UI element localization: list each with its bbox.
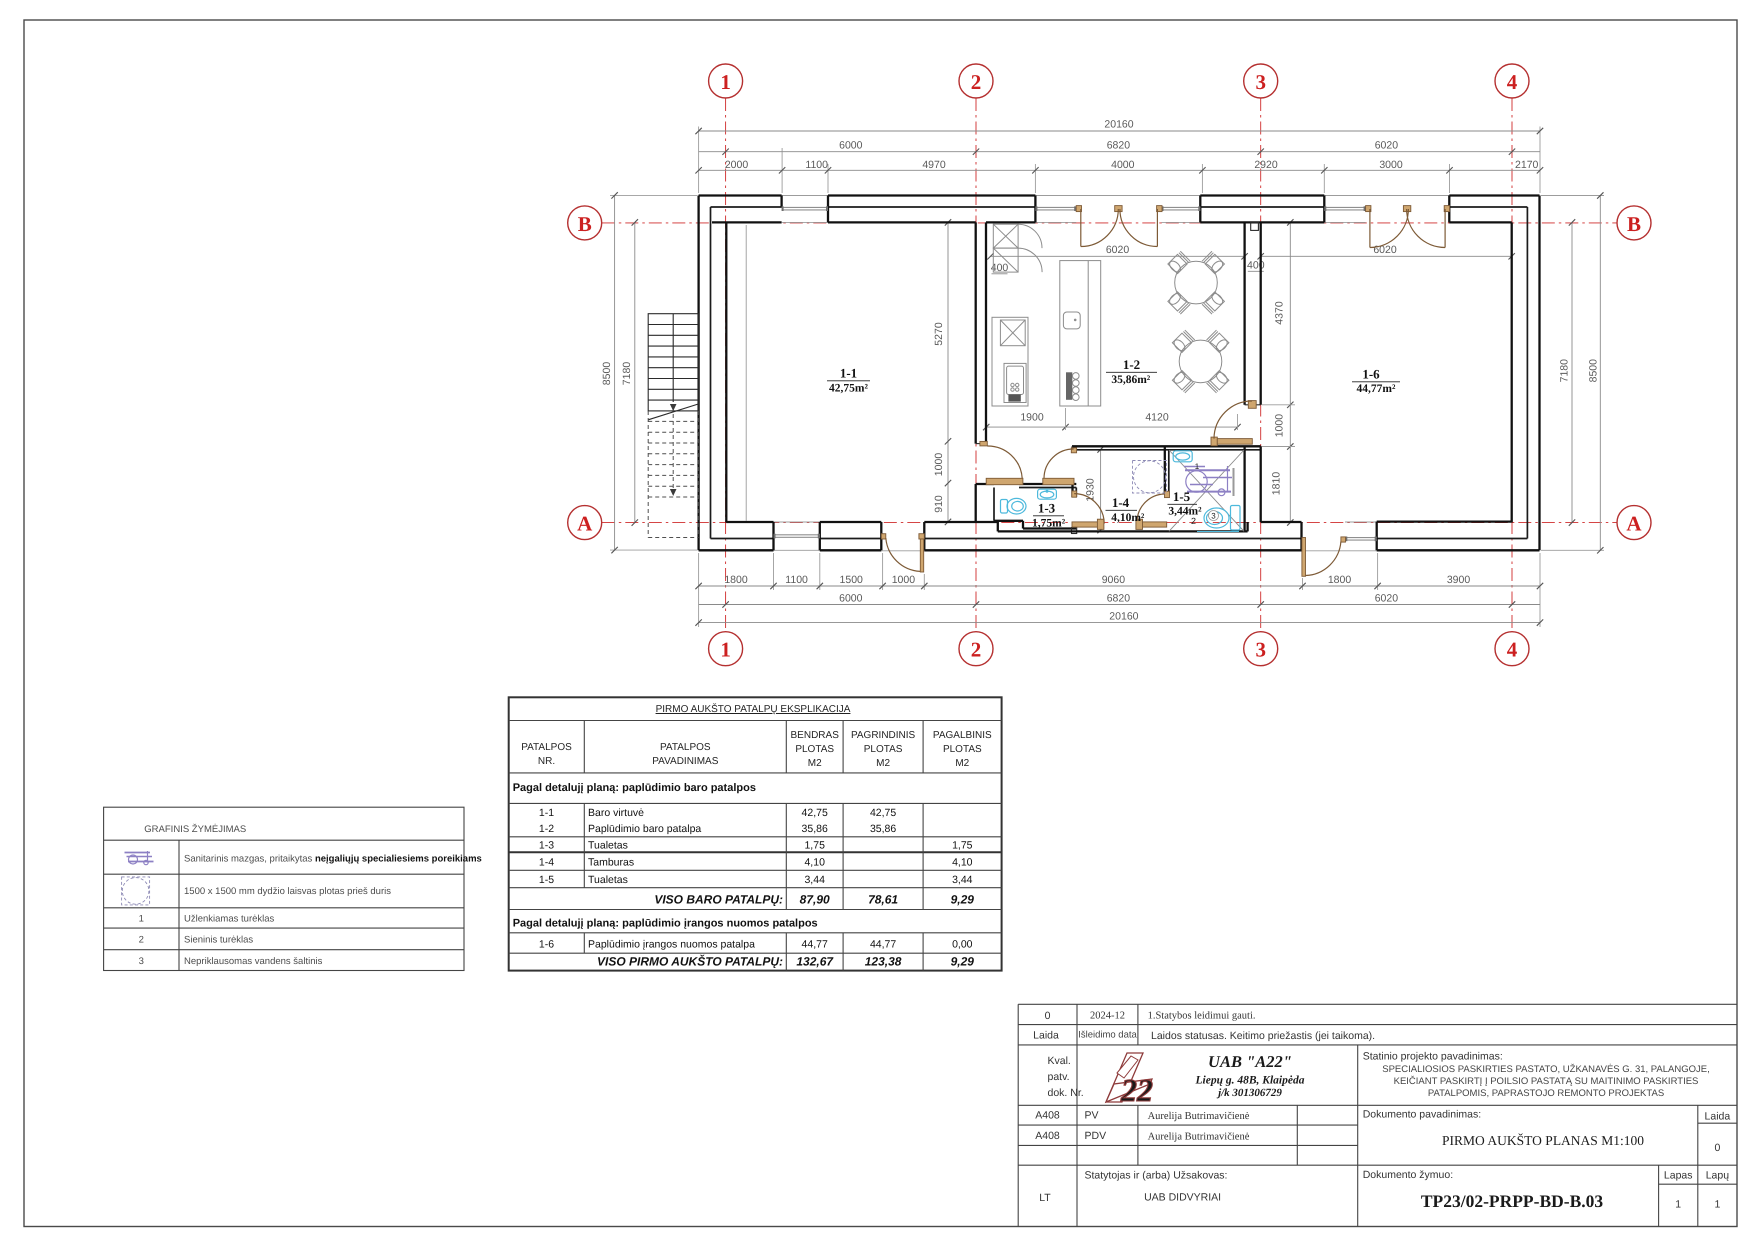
svg-text:1-1: 1-1 (539, 807, 554, 819)
svg-text:1800: 1800 (1328, 574, 1352, 586)
svg-text:3: 3 (1211, 512, 1216, 521)
svg-text:5270: 5270 (933, 322, 945, 346)
svg-text:1: 1 (1714, 1199, 1720, 1211)
svg-text:1100: 1100 (785, 574, 808, 586)
svg-text:6820: 6820 (1107, 140, 1131, 152)
svg-text:Laida: Laida (1033, 1030, 1059, 1042)
svg-text:PAVADINIMAS: PAVADINIMAS (652, 756, 718, 767)
svg-text:7180: 7180 (1558, 359, 1570, 383)
svg-text:2: 2 (139, 935, 144, 946)
svg-text:PLOTAS: PLOTAS (864, 744, 903, 755)
svg-text:4,10: 4,10 (804, 857, 825, 869)
svg-text:6820: 6820 (1107, 593, 1131, 605)
svg-text:Liepų g. 48B, Klaipėda: Liepų g. 48B, Klaipėda (1195, 1075, 1305, 1087)
svg-text:Laidos statusas. Keitimo priež: Laidos statusas. Keitimo priežastis (jei… (1151, 1030, 1375, 1042)
svg-text:42,75m²: 42,75m² (829, 383, 868, 395)
svg-text:Aurelija Butrimavičienė: Aurelija Butrimavičienė (1148, 1132, 1250, 1143)
svg-text:4: 4 (1507, 70, 1518, 94)
svg-text:35,86: 35,86 (802, 823, 828, 835)
svg-text:7180: 7180 (621, 362, 633, 386)
svg-text:Pagal detalujį planą: paplūdim: Pagal detalujį planą: paplūdimio baro pa… (513, 782, 756, 794)
svg-text:6000: 6000 (839, 593, 863, 605)
svg-text:2: 2 (1191, 516, 1196, 526)
svg-text:A: A (1626, 512, 1642, 536)
svg-text:2024-12: 2024-12 (1090, 1011, 1125, 1022)
svg-text:1-2: 1-2 (1123, 357, 1140, 372)
svg-text:PIRMO AUKŠTO PLANAS M1:100: PIRMO AUKŠTO PLANAS M1:100 (1442, 1133, 1644, 1148)
svg-text:TP23/02-PRPP-BD-B.03: TP23/02-PRPP-BD-B.03 (1421, 1191, 1604, 1211)
svg-text:78,61: 78,61 (868, 893, 898, 907)
svg-text:1-2: 1-2 (539, 823, 554, 835)
svg-text:M2: M2 (876, 758, 890, 769)
svg-text:1: 1 (1675, 1199, 1681, 1211)
svg-text:1-3: 1-3 (1038, 501, 1056, 516)
svg-text:M2: M2 (808, 758, 822, 769)
svg-text:42,75: 42,75 (870, 807, 896, 819)
svg-text:B: B (1627, 212, 1641, 236)
svg-text:1800: 1800 (724, 574, 748, 586)
svg-text:Tualetas: Tualetas (588, 874, 628, 886)
svg-text:PLOTAS: PLOTAS (943, 744, 982, 755)
svg-text:4000: 4000 (1111, 159, 1135, 171)
svg-text:VISO PIRMO AUKŠTO PATALPŲ:: VISO PIRMO AUKŠTO PATALPŲ: (597, 955, 783, 969)
svg-text:Sieninis turėklas: Sieninis turėklas (184, 935, 253, 946)
svg-text:PIRMO AUKŠTO PATALPŲ EKSPLIKAC: PIRMO AUKŠTO PATALPŲ EKSPLIKACIJA (656, 703, 851, 715)
svg-text:8500: 8500 (601, 362, 613, 386)
svg-text:22: 22 (1120, 1072, 1153, 1108)
svg-text:Sanitarinis mazgas, pritaikyta: Sanitarinis mazgas, pritaikytas neįgalių… (184, 854, 482, 865)
svg-text:PAGALBINIS: PAGALBINIS (933, 730, 992, 741)
svg-text:1500 x 1500 mm dydžio laisvas: 1500 x 1500 mm dydžio laisvas plotas pri… (184, 886, 391, 897)
svg-text:8500: 8500 (1588, 359, 1600, 383)
svg-text:9,29: 9,29 (951, 893, 975, 907)
svg-text:Statinio projekto pavadinimas:: Statinio projekto pavadinimas: (1363, 1051, 1503, 1063)
svg-text:A408: A408 (1035, 1130, 1060, 1142)
svg-text:3,44: 3,44 (952, 874, 973, 886)
svg-text:44,77: 44,77 (870, 939, 896, 951)
svg-text:6020: 6020 (1106, 244, 1130, 256)
svg-text:Aurelija Butrimavičienė: Aurelija Butrimavičienė (1148, 1111, 1250, 1122)
svg-text:87,90: 87,90 (800, 893, 830, 907)
svg-text:Išleidimo data: Išleidimo data (1078, 1030, 1137, 1041)
svg-text:1,75: 1,75 (804, 840, 825, 852)
svg-text:Dokumento žymuo:: Dokumento žymuo: (1363, 1169, 1453, 1181)
svg-text:Tamburas: Tamburas (588, 857, 634, 869)
svg-text:3,44: 3,44 (804, 874, 825, 886)
svg-text:Paplūdimio baro patalpa: Paplūdimio baro patalpa (588, 823, 701, 835)
svg-text:UAB DIDVYRIAI: UAB DIDVYRIAI (1144, 1192, 1221, 1204)
svg-text:1-5: 1-5 (1173, 489, 1191, 504)
svg-text:1,75m²: 1,75m² (1032, 518, 1066, 530)
svg-text:1-1: 1-1 (840, 366, 857, 381)
svg-text:Kval.: Kval. (1048, 1055, 1071, 1067)
svg-text:SPECIALIOSIOS PASKIRTIES PASTA: SPECIALIOSIOS PASKIRTIES PASTATO, UŽKANA… (1382, 1063, 1710, 1075)
svg-text:1100: 1100 (805, 159, 828, 171)
svg-text:Laida: Laida (1705, 1111, 1731, 1123)
svg-text:2: 2 (971, 638, 982, 662)
svg-text:A408: A408 (1035, 1110, 1060, 1122)
svg-text:VISO BARO PATALPŲ:: VISO BARO PATALPŲ: (654, 893, 783, 907)
svg-text:1-3: 1-3 (539, 840, 554, 852)
svg-text:4120: 4120 (1145, 412, 1169, 424)
svg-text:35,86: 35,86 (870, 823, 896, 835)
svg-text:Tualetas: Tualetas (588, 840, 628, 852)
svg-text:j/k 301306729: j/k 301306729 (1216, 1087, 1282, 1099)
svg-text:3: 3 (1255, 70, 1266, 94)
svg-text:0: 0 (1714, 1142, 1720, 1154)
svg-text:20160: 20160 (1109, 611, 1138, 623)
svg-text:GRAFINIS ŽYMĖJIMAS: GRAFINIS ŽYMĖJIMAS (144, 823, 246, 835)
svg-text:1-4: 1-4 (539, 857, 554, 869)
svg-text:42,75: 42,75 (802, 807, 828, 819)
svg-text:44,77: 44,77 (802, 939, 828, 951)
svg-text:6020: 6020 (1375, 593, 1399, 605)
svg-text:1000: 1000 (933, 453, 945, 477)
svg-text:2920: 2920 (1254, 159, 1278, 171)
svg-text:3900: 3900 (1447, 574, 1471, 586)
svg-text:1900: 1900 (1020, 412, 1044, 424)
svg-text:PATALPOMIS, PAPRASTOJO REMONTO: PATALPOMIS, PAPRASTOJO REMONTO PROJEKTAS (1428, 1088, 1664, 1099)
svg-text:4,10: 4,10 (952, 857, 973, 869)
svg-text:910: 910 (933, 495, 945, 513)
svg-text:A: A (577, 512, 593, 536)
svg-text:1-5: 1-5 (539, 874, 554, 886)
svg-text:3: 3 (139, 956, 144, 967)
svg-text:6020: 6020 (1373, 244, 1397, 256)
svg-text:LT: LT (1039, 1192, 1051, 1204)
svg-text:4970: 4970 (922, 159, 946, 171)
svg-text:1000: 1000 (1273, 414, 1285, 438)
svg-text:1-6: 1-6 (539, 939, 554, 951)
svg-text:9060: 9060 (1102, 574, 1126, 586)
svg-text:132,67: 132,67 (796, 955, 834, 969)
svg-text:1000: 1000 (892, 574, 916, 586)
svg-text:20160: 20160 (1104, 119, 1133, 131)
svg-text:123,38: 123,38 (865, 955, 902, 969)
svg-text:1: 1 (1195, 462, 1200, 471)
svg-text:Užlenkiamas turėklas: Užlenkiamas turėklas (184, 914, 275, 925)
svg-text:NR.: NR. (538, 756, 555, 767)
svg-text:6020: 6020 (1375, 140, 1399, 152)
svg-text:6000: 6000 (839, 140, 863, 152)
svg-text:1.Statybos leidimui gauti.: 1.Statybos leidimui gauti. (1148, 1011, 1256, 1022)
svg-text:4370: 4370 (1273, 301, 1285, 325)
svg-text:2: 2 (971, 70, 982, 94)
svg-text:patv.: patv. (1048, 1071, 1070, 1083)
svg-text:9,29: 9,29 (951, 955, 975, 969)
svg-text:1: 1 (720, 70, 731, 94)
svg-text:Statytojas ir (arba) Užsakovas: Statytojas ir (arba) Užsakovas: (1085, 1170, 1228, 1182)
svg-text:Paplūdimio įrangos nuomos pata: Paplūdimio įrangos nuomos patalpa (588, 939, 755, 951)
svg-text:dok. Nr.: dok. Nr. (1048, 1087, 1084, 1099)
svg-text:UAB "A22": UAB "A22" (1208, 1052, 1292, 1071)
svg-text:Baro virtuvė: Baro virtuvė (588, 807, 644, 819)
svg-text:1-4: 1-4 (1112, 495, 1130, 510)
svg-text:M2: M2 (955, 758, 969, 769)
svg-text:400: 400 (1247, 260, 1265, 272)
svg-text:1810: 1810 (1271, 472, 1283, 496)
svg-text:4: 4 (1507, 638, 1518, 662)
svg-text:1-6: 1-6 (1362, 367, 1380, 382)
svg-text:PDV: PDV (1085, 1130, 1107, 1142)
svg-text:1500: 1500 (840, 574, 864, 586)
svg-text:PLOTAS: PLOTAS (795, 744, 834, 755)
svg-text:PATALPOS: PATALPOS (521, 742, 572, 753)
svg-text:44,77m²: 44,77m² (1357, 383, 1396, 395)
svg-text:Dokumento pavadinimas:: Dokumento pavadinimas: (1363, 1109, 1481, 1121)
svg-text:Pagal detalujį planą: paplūdim: Pagal detalujį planą: paplūdimio įrangos… (513, 918, 818, 930)
svg-text:0,00: 0,00 (952, 939, 973, 951)
svg-text:3000: 3000 (1379, 159, 1403, 171)
svg-text:0: 0 (1045, 1010, 1051, 1022)
svg-text:1: 1 (139, 914, 144, 925)
svg-text:2000: 2000 (725, 159, 749, 171)
svg-text:Lapas: Lapas (1664, 1170, 1693, 1182)
svg-text:3: 3 (1255, 638, 1266, 662)
svg-text:1: 1 (720, 638, 731, 662)
svg-text:Lapų: Lapų (1706, 1170, 1730, 1182)
svg-text:4,10m²: 4,10m² (1111, 512, 1145, 524)
svg-text:KEIČIANT PASKIRTĮ Į POILSIO PA: KEIČIANT PASKIRTĮ Į POILSIO PASTATĄ SU M… (1394, 1075, 1699, 1087)
svg-text:35,86m²: 35,86m² (1111, 374, 1150, 386)
svg-text:PAGRINDINIS: PAGRINDINIS (851, 730, 916, 741)
svg-text:Nepriklausomas vandens šaltini: Nepriklausomas vandens šaltinis (184, 956, 323, 967)
svg-text:PV: PV (1085, 1110, 1099, 1122)
svg-text:BENDRAS: BENDRAS (791, 730, 840, 741)
svg-text:2170: 2170 (1515, 159, 1539, 171)
svg-text:3,44m²: 3,44m² (1168, 506, 1202, 518)
svg-text:PATALPOS: PATALPOS (660, 742, 711, 753)
svg-text:B: B (578, 212, 592, 236)
svg-text:1,75: 1,75 (952, 840, 973, 852)
